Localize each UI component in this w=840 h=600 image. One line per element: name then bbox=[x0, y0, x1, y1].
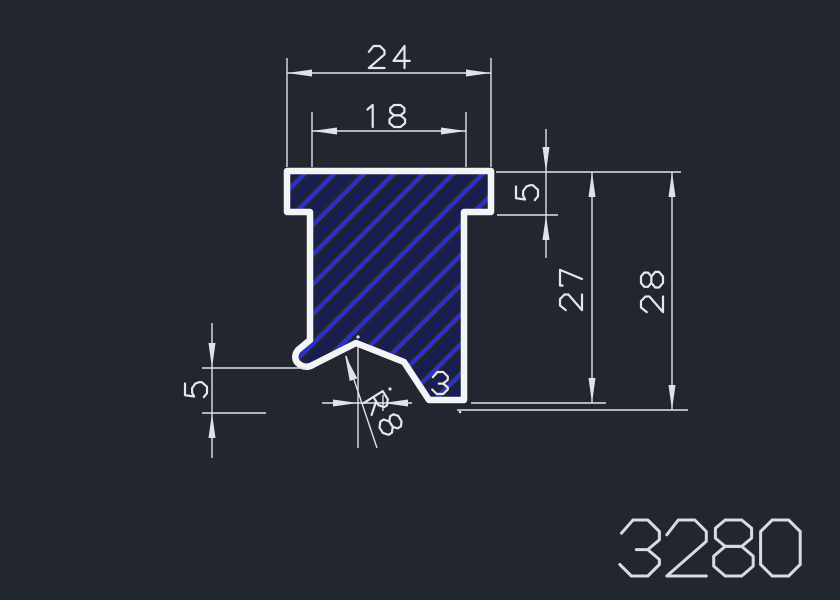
arrow-18-right bbox=[441, 128, 466, 135]
cad-canvas bbox=[0, 0, 840, 600]
arrow-18-left bbox=[312, 128, 337, 135]
dim-text-24 bbox=[369, 46, 410, 68]
arrow-radius-leader bbox=[345, 355, 357, 381]
dim-text-5-right bbox=[516, 185, 538, 200]
dim-text-r8 bbox=[364, 391, 404, 437]
node-dot bbox=[388, 387, 391, 390]
arrow-3-left bbox=[333, 400, 358, 407]
arrow-24-left bbox=[287, 70, 312, 77]
arrow-27-top bbox=[589, 172, 596, 197]
arrow-24-right bbox=[466, 70, 491, 77]
technical-drawing bbox=[0, 0, 840, 600]
dim-text-5-left bbox=[185, 382, 207, 397]
arrow-5l-bottom bbox=[209, 413, 216, 438]
dim-text-27 bbox=[560, 270, 582, 310]
arrow-27-bottom bbox=[589, 378, 596, 403]
arrow-5r-top bbox=[543, 147, 550, 172]
arrow-28-bottom bbox=[669, 385, 676, 410]
part-number bbox=[620, 520, 800, 576]
arrow-5r-bottom bbox=[543, 215, 550, 240]
arrow-28-top bbox=[669, 172, 676, 197]
dim-text-28 bbox=[641, 272, 663, 312]
profile-outline bbox=[287, 171, 491, 400]
node-dot bbox=[356, 335, 359, 338]
arrow-5l-top bbox=[209, 343, 216, 368]
dim-text-18 bbox=[368, 105, 406, 127]
node-dot bbox=[459, 411, 462, 414]
